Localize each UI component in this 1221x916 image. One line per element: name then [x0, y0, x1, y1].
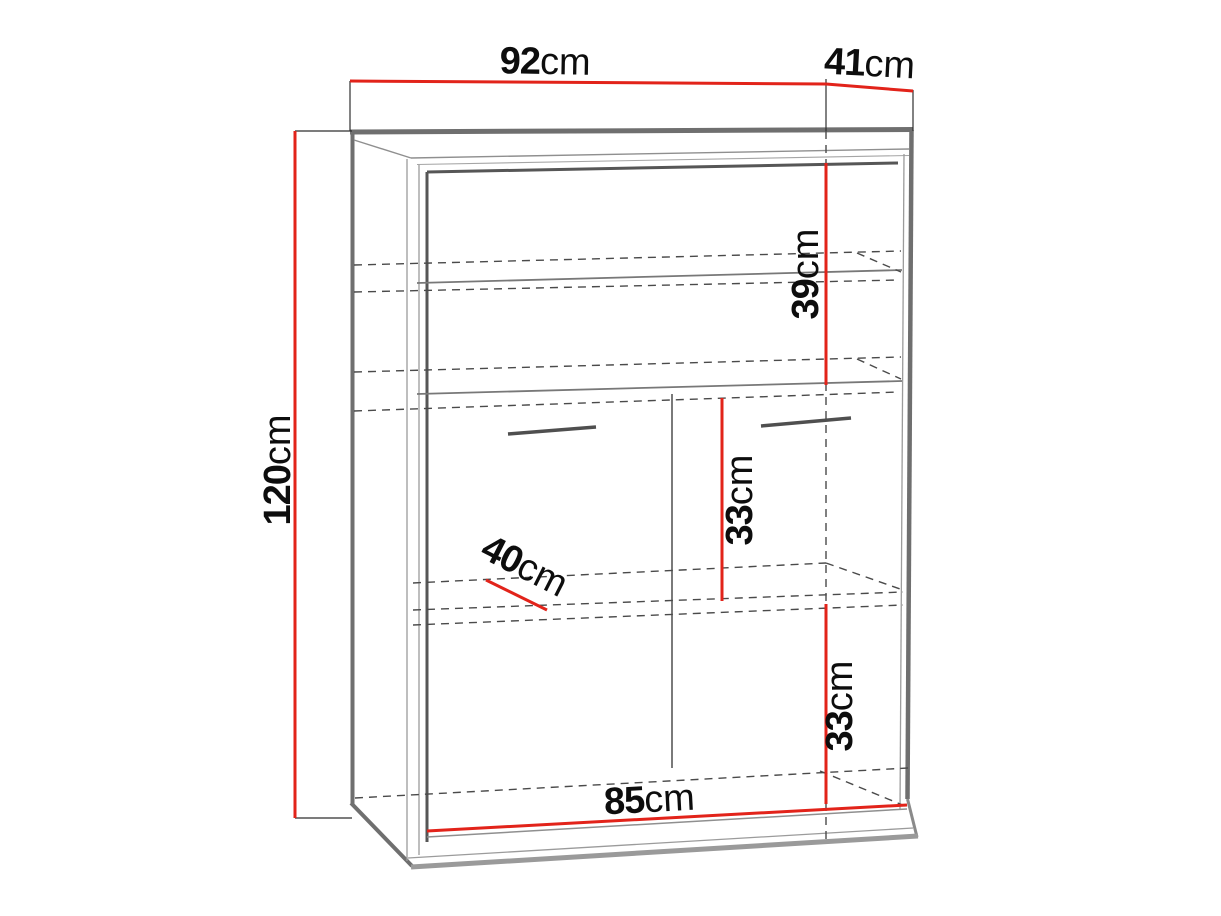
shelf-1-front-edge — [417, 270, 902, 283]
shelf-2-front-edge — [417, 381, 902, 394]
right-door-handle — [761, 418, 851, 426]
dimension-label-height: 120cm — [257, 414, 299, 525]
shelf-2-back-edge — [354, 357, 901, 372]
shelf-1-right-edge — [857, 253, 901, 272]
dimension-label-shelf-depth: 40cm — [474, 527, 574, 606]
cabinet-top-edge — [350, 130, 913, 133]
dimension-label-top-section: 39cm — [785, 229, 827, 320]
dimension-label-depth: 41cm — [823, 41, 916, 88]
bottom-right-receding-edge — [820, 771, 905, 806]
dimension-label-middle-section: 33cm — [719, 455, 761, 546]
cabinet-right-base-bevel — [908, 799, 918, 837]
diagram-canvas: 92cm 41cm 120cm 39cm 33cm 40cm 33cm 85cm — [0, 0, 1221, 916]
cabinet-right-edge — [908, 130, 912, 799]
dimension-label-width: 92cm — [499, 40, 591, 84]
shelf-3-front-edge — [413, 592, 903, 610]
shelf-3-right-edge — [826, 563, 903, 590]
cabinet-bottom-shadow — [411, 836, 918, 867]
shelf-3-back-edge — [413, 563, 826, 583]
cabinet-left-base-bevel — [351, 803, 412, 866]
dimension-label-inner-width: 85cm — [603, 777, 696, 824]
shelf-2-right-edge — [857, 359, 901, 379]
shelf-2-under-edge — [354, 392, 899, 411]
cabinet-dimension-diagram: 92cm 41cm 120cm 39cm 33cm 40cm 33cm 85cm — [0, 0, 1221, 916]
top-left-bevel — [354, 140, 411, 158]
left-door-handle — [508, 427, 596, 434]
cabinet-line-art — [350, 130, 918, 868]
inner-right-wall — [900, 154, 904, 810]
dimension-label-bottom-section: 33cm — [819, 661, 861, 752]
